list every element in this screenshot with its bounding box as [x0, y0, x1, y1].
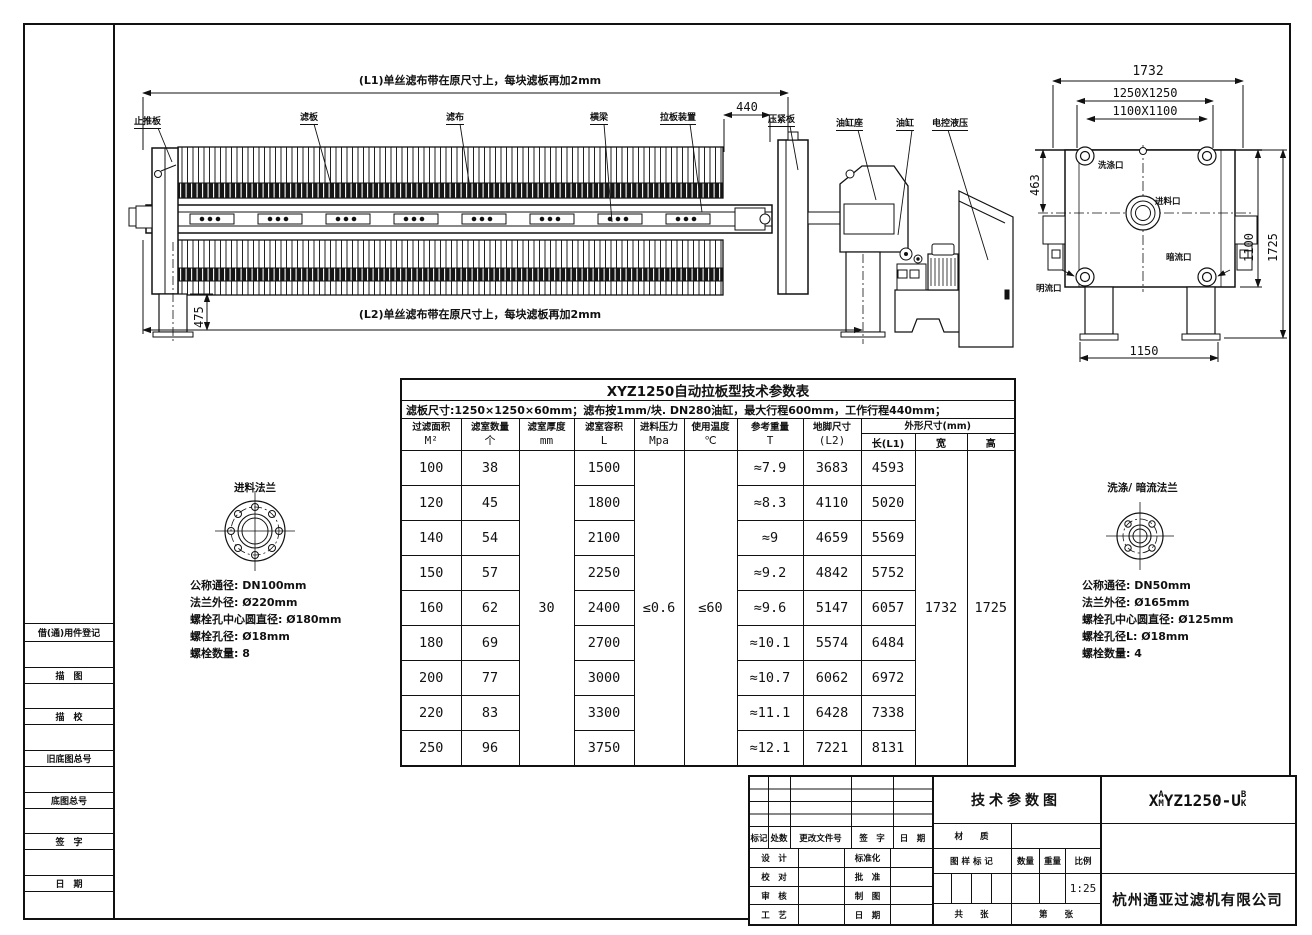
sub-header-length: 长(L1) — [861, 434, 915, 451]
dim-1100: 1100 — [1242, 233, 1256, 262]
table-spec-line: 滤板尺寸:1250×1250×60mm；滤布按1mm/块. DN280油缸，最大… — [401, 401, 1015, 419]
wash-flange-spec-line: 螺栓数量: 4 — [1082, 645, 1233, 662]
role-cell-empty — [799, 868, 845, 887]
role-process: 工 艺 — [750, 905, 799, 924]
feed-flange-spec-line: 公称通径: DN100mm — [190, 577, 341, 594]
page-no-label: 第 张 — [1012, 904, 1100, 924]
role-approve: 批 准 — [845, 868, 891, 887]
label-cylinder-seat: 油缸座 — [836, 116, 863, 131]
rev-header-count: 处数 — [768, 827, 790, 849]
sub-header-width: 宽 — [915, 434, 967, 451]
label-filter-plate: 滤板 — [300, 110, 318, 125]
material-label: 材 质 — [932, 824, 1012, 849]
wash-flange-specs: 公称通径: DN50mm 法兰外径: Ø165mm 螺栓孔中心圆直径: Ø125… — [1082, 577, 1233, 662]
label-feed-port: 进料口 — [1155, 195, 1181, 207]
rev-header-signature: 签 字 — [851, 827, 893, 849]
dim-440: 440 — [726, 100, 768, 114]
label-electric-hydraulic: 电控液压 — [932, 116, 968, 131]
rev-header-mark: 标记 — [750, 827, 768, 849]
label-plate-shifter: 拉板装置 — [660, 110, 696, 125]
role-cell-empty — [799, 887, 845, 905]
total-sheets-label: 共 张 — [932, 904, 1012, 924]
label-thrust-plate: 止推板 — [134, 114, 161, 129]
dim-1100x1100: 1100X1100 — [1097, 104, 1193, 118]
rev-header-change-doc: 更改文件号 — [790, 827, 851, 849]
feed-flange-specs: 公称通径: DN100mm 法兰外径: Ø220mm 螺栓孔中心圆直径: Ø18… — [190, 577, 341, 662]
dim-475: 475 — [192, 306, 206, 328]
drawing-mark-label: 图 样 标 记 — [932, 849, 1012, 874]
label-main-beam: 横梁 — [590, 110, 608, 125]
margin-box-date: 日 期 — [25, 875, 113, 892]
feed-flange-spec-line: 螺栓孔中心圆直径: Ø180mm — [190, 611, 341, 628]
right-empty-cell — [1100, 824, 1295, 874]
role-standardize: 标准化 — [845, 849, 891, 868]
parameters-table: XYZ1250自动拉板型技术参数表 滤板尺寸:1250×1250×60mm；滤布… — [400, 378, 1016, 767]
col-header: 进料压力Mpa — [634, 419, 684, 451]
dim-1732: 1732 — [1108, 64, 1188, 79]
label-wash-port: 洗涤口 — [1098, 159, 1124, 171]
title-block: 标记 处数 更改文件号 签 字 日 期 设 计 标准化 校 对 批 准 审 核 … — [748, 775, 1297, 926]
col-header: 参考重量T — [737, 419, 803, 451]
mark-cell-empty — [972, 874, 992, 904]
doc-title: 技术参数图 — [932, 777, 1100, 824]
margin-box-trace-check: 描 校 — [25, 708, 113, 725]
role-cell-empty — [891, 868, 932, 887]
role-review: 审 核 — [750, 887, 799, 905]
label-cylinder: 油缸 — [896, 116, 914, 131]
company-name: 杭州通亚过滤机有限公司 — [1100, 874, 1295, 924]
rev-header-date: 日 期 — [893, 827, 932, 849]
wash-flange-spec-line: 螺栓孔中心圆直径: Ø125mm — [1082, 611, 1233, 628]
label-press-plate: 压紧板 — [768, 112, 795, 127]
col-header: 地脚尺寸(L2) — [803, 419, 861, 451]
mark-cell-empty — [952, 874, 972, 904]
role-draft: 制 图 — [845, 887, 891, 905]
mark-cell-empty — [992, 874, 1012, 904]
wash-flange-title: 洗涤/ 暗流法兰 — [1085, 480, 1200, 495]
col-header: 过滤面积M² — [401, 419, 461, 451]
label-filter-cloth: 滤布 — [446, 110, 464, 125]
margin-box-old-master-no: 旧底图总号 — [25, 750, 113, 767]
role-cell-empty — [891, 849, 932, 868]
dim-463: 463 — [1028, 174, 1042, 196]
weight-value-empty — [1040, 874, 1066, 904]
drawing-number: XAMYZ1250-UBK — [1100, 777, 1295, 824]
wash-flange-spec-line: 螺栓孔径L: Ø18mm — [1082, 628, 1233, 645]
margin-box-master-no: 底图总号 — [25, 792, 113, 809]
margin-box-borrowed-parts: 借(通)用件登记 — [25, 623, 113, 642]
feed-flange-title: 进料法兰 — [205, 480, 305, 495]
mark-cell-empty — [932, 874, 952, 904]
col-header: 滤室厚度mm — [519, 419, 574, 451]
margin-box-tracing: 描 图 — [25, 667, 113, 684]
wash-flange-spec-line: 公称通径: DN50mm — [1082, 577, 1233, 594]
dim-l2-note: (L2)单丝滤布带在原尺寸上，每块滤板再加2mm — [280, 306, 680, 322]
revision-empty-rows — [750, 777, 932, 827]
dim-1250x1250: 1250X1250 — [1092, 86, 1198, 100]
feed-flange-spec-line: 法兰外径: Ø220mm — [190, 594, 341, 611]
dim-l1-note: (L1)单丝滤布带在原尺寸上，每块滤板再加2mm — [270, 72, 690, 88]
role-cell-empty — [799, 849, 845, 868]
role-design: 设 计 — [750, 849, 799, 868]
merged-width: 1732 — [915, 451, 967, 767]
col-header-outline-dims: 外形尺寸(mm) — [861, 419, 1015, 434]
table-row: 10038 30 1500 ≤0.6 ≤60 ≈7.936834593 1732… — [401, 451, 1015, 486]
feed-flange-spec-line: 螺栓孔径: Ø18mm — [190, 628, 341, 645]
material-value-empty — [1012, 824, 1100, 849]
qty-label: 数量 — [1012, 849, 1040, 874]
drawing-no-part: YZ1250-U — [1164, 791, 1241, 810]
margin-box-signature: 签 字 — [25, 833, 113, 850]
col-header: 滤室数量个 — [461, 419, 519, 451]
scale-label: 比例 — [1066, 849, 1100, 874]
merged-temperature: ≤60 — [684, 451, 737, 767]
merged-thickness: 30 — [519, 451, 574, 767]
role-cell-empty — [891, 905, 932, 924]
table-title: XYZ1250自动拉板型技术参数表 — [401, 379, 1015, 401]
weight-label: 重量 — [1040, 849, 1066, 874]
role-cell-empty — [891, 887, 932, 905]
scale-value: 1:25 — [1066, 874, 1100, 904]
role-cell-empty — [799, 905, 845, 924]
sub-header-height: 高 — [967, 434, 1015, 451]
dim-1150: 1150 — [1114, 344, 1174, 358]
role-check: 校 对 — [750, 868, 799, 887]
drawing-no-part: X — [1149, 791, 1159, 810]
wash-flange-spec-line: 法兰外径: Ø165mm — [1082, 594, 1233, 611]
left-margin-divider — [113, 23, 115, 920]
feed-flange-spec-line: 螺栓数量: 8 — [190, 645, 341, 662]
label-dark-flow-port: 暗流口 — [1166, 251, 1192, 263]
qty-value-empty — [1012, 874, 1040, 904]
drawing-sheet: (L1)单丝滤布带在原尺寸上，每块滤板再加2mm (L2)单丝滤布带在原尺寸上，… — [0, 0, 1312, 935]
merged-height: 1725 — [967, 451, 1015, 767]
role-date: 日 期 — [845, 905, 891, 924]
col-header: 使用温度℃ — [684, 419, 737, 451]
merged-pressure: ≤0.6 — [634, 451, 684, 767]
col-header: 滤室容积L — [574, 419, 634, 451]
label-open-flow-port: 明流口 — [1036, 282, 1062, 294]
dim-1725: 1725 — [1266, 233, 1280, 262]
